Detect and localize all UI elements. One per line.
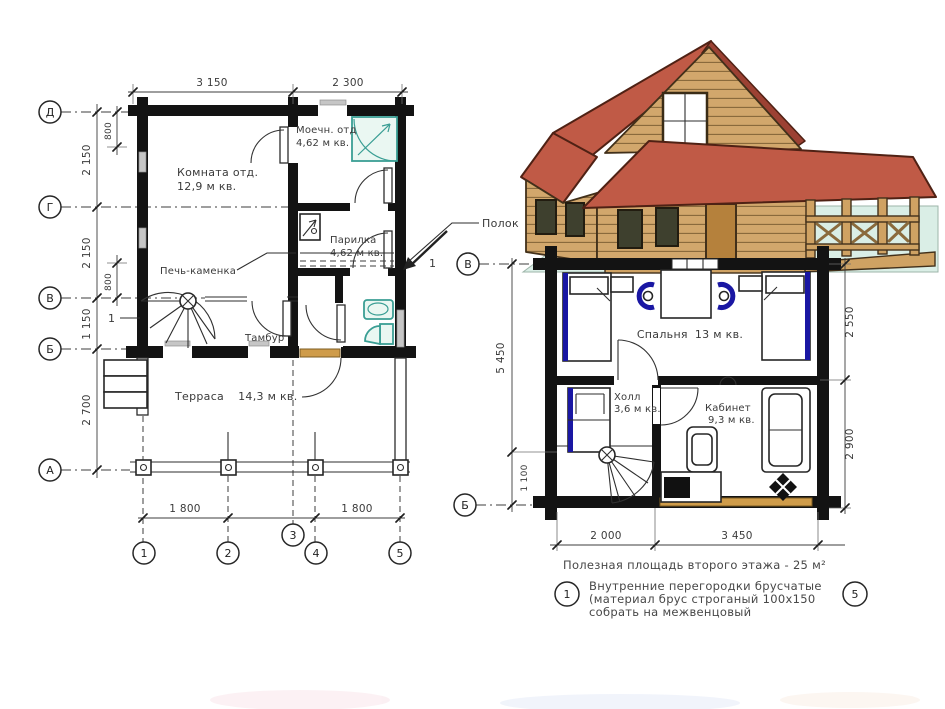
room-label-restroom: Комната отд.: [177, 166, 258, 179]
door-arc-vestibule: [252, 301, 287, 336]
dim-bottom-1: 1 800: [169, 503, 201, 515]
axis-lines: [476, 264, 545, 505]
dim-top-1: 3 150: [196, 77, 228, 89]
note-marker-start: 1: [564, 588, 571, 601]
room-label-steamroom: Парилка: [330, 235, 376, 246]
floor-area-note: Полезная площадь второго этажа - 25 м²: [563, 558, 826, 572]
dim-bottom-2: 3 450: [721, 530, 753, 542]
door-leaf-washroom: [384, 168, 392, 203]
room-label-bedroom: Спальня13 м кв.: [637, 328, 743, 341]
scan-artifacts: [210, 690, 920, 709]
room-area-study: 9,3 м кв.: [708, 415, 755, 426]
axis-label-v: В: [464, 258, 472, 271]
porch-rail-top: [806, 216, 919, 222]
front-window-1: [618, 210, 642, 248]
section-label: 1: [108, 312, 115, 325]
dim-left-2: 2 150: [81, 237, 93, 269]
axis-markers-left: Д Г В Б А: [39, 101, 61, 481]
left-wing-window-1: [536, 200, 556, 234]
wardrobe: [568, 388, 610, 452]
bedroom-name: Спальня: [637, 328, 688, 341]
terrace-post: [308, 460, 323, 475]
bedroom-area: 13 м кв.: [695, 328, 743, 341]
fixtures: [300, 117, 397, 344]
axis-markers-left: В Б: [454, 253, 479, 516]
room-label-washroom: Моечн. отд: [296, 125, 357, 136]
stove-callout: Печь-каменка: [160, 253, 296, 277]
notes-block: Полезная площадь второго этажа - 25 м² 1…: [555, 558, 867, 619]
sofa: [762, 388, 810, 472]
dim-inner-800a: 800: [104, 122, 114, 140]
dimensions-bottom: 1 800 1 800: [138, 503, 405, 522]
terrace-post: [136, 460, 151, 475]
dim-inner-800b: 800: [104, 273, 114, 291]
section-mark-left: 1: [108, 312, 140, 325]
axis-label-b: Б: [461, 499, 469, 512]
door-leaf-restroom: [280, 127, 288, 163]
door-leaf-wc: [337, 305, 345, 342]
room-label-terrace: Терраса14,3 м кв.: [174, 390, 298, 403]
room-label-vestibule: Тамбур: [244, 333, 284, 344]
bed-right: [739, 272, 810, 360]
axis-label-d: Д: [46, 106, 55, 119]
note-marker-end: 5: [852, 588, 859, 601]
note-line-3: собрать на межвенцовый: [589, 605, 751, 619]
room-label-study: Кабинет: [705, 403, 751, 414]
section-mark-right: 1: [403, 231, 447, 270]
dim-left-1: 2 150: [81, 144, 93, 176]
axis-label-v: В: [46, 292, 54, 305]
toilet-bowl: [365, 326, 380, 344]
terrace-area: 14,3 м кв.: [238, 390, 297, 403]
room-label-hall: Холл: [614, 392, 641, 403]
dim-bottom-1: 2 000: [590, 530, 622, 542]
door-arc-bedroom: [618, 340, 658, 380]
dining-table: [661, 270, 711, 318]
shelf-label: Полок: [482, 217, 519, 230]
dim-height-lower: 1 100: [520, 464, 530, 491]
dim-left-4: 2 700: [81, 394, 93, 426]
dim-right-2: 2 900: [844, 428, 856, 460]
dimensions-bottom: 2 000 3 450: [550, 508, 845, 551]
dim-top-2: 2 300: [332, 77, 364, 89]
section-label: 1: [429, 257, 436, 270]
axis-label-g: Г: [47, 201, 54, 214]
room-area-hall: 3,6 м кв.: [614, 404, 661, 415]
blueprint-drawing: 3 150 2 300 2 150 2 150 1 150 2 700 800 …: [0, 0, 945, 709]
door-arc-washroom: [355, 170, 388, 203]
dim-right-1: 2 550: [844, 306, 856, 338]
axis-label-a: А: [46, 464, 54, 477]
front-window-2: [656, 208, 678, 246]
house-illustration: [521, 41, 938, 273]
axis-label-5: 5: [397, 547, 404, 560]
entrance-steps: [104, 360, 147, 408]
room-area-steamroom: 4,62 м кв.: [330, 248, 383, 259]
staircase: [599, 447, 654, 503]
toilet-tank: [380, 324, 393, 344]
door-arc-entrance: [302, 358, 341, 397]
spiral-staircase: [141, 292, 215, 348]
dim-left-3: 1 150: [81, 308, 93, 340]
blueprint-page: 3 150 2 300 2 150 2 150 1 150 2 700 800 …: [0, 0, 945, 709]
desk-with-computer: [661, 472, 721, 502]
door-leaf-steamroom: [384, 231, 392, 268]
chair-right: [718, 285, 733, 308]
stove-label: Печь-каменка: [160, 266, 236, 277]
terrace-post: [393, 460, 408, 475]
dim-height-total: 5 450: [495, 342, 507, 374]
terrace-name: Терраса: [174, 390, 224, 403]
door-arc-restroom: [251, 130, 284, 163]
axis-label-4: 4: [313, 547, 320, 560]
second-floor-plan: 5 450 1 100 2 550 2 900 2 000 3 450 В Б …: [454, 246, 856, 551]
dimensions-top: 3 150 2 300: [128, 77, 408, 104]
armchair: [687, 427, 717, 472]
axis-label-3: 3: [290, 529, 297, 542]
terrace: [104, 358, 410, 475]
note-line-1: Внутренние перегородки брусчатые: [589, 579, 822, 593]
chair-left: [639, 285, 654, 308]
steam-bench: [300, 261, 394, 266]
door-leaf-entrance: [300, 349, 340, 357]
axis-label-b: Б: [46, 343, 54, 356]
dim-bottom-2: 1 800: [341, 503, 373, 515]
door-arc-study: [661, 388, 698, 425]
axis-label-2: 2: [225, 547, 232, 560]
first-floor-plan: 3 150 2 300 2 150 2 150 1 150 2 700 800 …: [39, 77, 519, 564]
axis-label-1: 1: [141, 547, 148, 560]
room-area-washroom: 4,62 м кв.: [296, 138, 349, 149]
front-door: [706, 204, 736, 263]
room-area-restroom: 12,9 м кв.: [177, 180, 236, 193]
terrace-post: [221, 460, 236, 475]
left-wing-window-2: [566, 203, 584, 236]
dimensions-left: 2 150 2 150 1 150 2 700 800 800: [81, 104, 127, 478]
axis-markers-bottom: 1 2 3 4 5: [133, 524, 411, 564]
bed-left: [563, 273, 633, 361]
door-leaf-vestibule: [283, 301, 291, 336]
note-line-2: (материал брус строганый 100х150: [589, 592, 815, 606]
